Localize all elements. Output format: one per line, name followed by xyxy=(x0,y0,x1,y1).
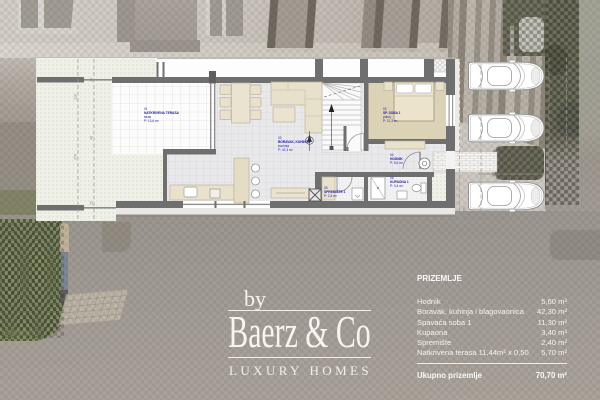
svg-text:P: 3,4 m²: P: 3,4 m² xyxy=(390,184,403,188)
svg-text:450: 450 xyxy=(463,206,467,212)
svg-text:P: 5,6 m²: P: 5,6 m² xyxy=(390,161,403,165)
svg-text:46: 46 xyxy=(90,136,94,140)
svg-text:25: 25 xyxy=(90,201,94,205)
svg-text:P: 13,6 m²: P: 13,6 m² xyxy=(144,119,159,123)
svg-text:210: 210 xyxy=(74,94,78,100)
svg-text:P: 11,3 m²: P: 11,3 m² xyxy=(383,119,397,123)
svg-text:P: 2,4 m²: P: 2,4 m² xyxy=(324,194,337,198)
svg-text:25: 25 xyxy=(90,78,94,82)
svg-text:P: 42,3 m²: P: 42,3 m² xyxy=(278,148,293,152)
svg-text:370: 370 xyxy=(74,154,78,160)
